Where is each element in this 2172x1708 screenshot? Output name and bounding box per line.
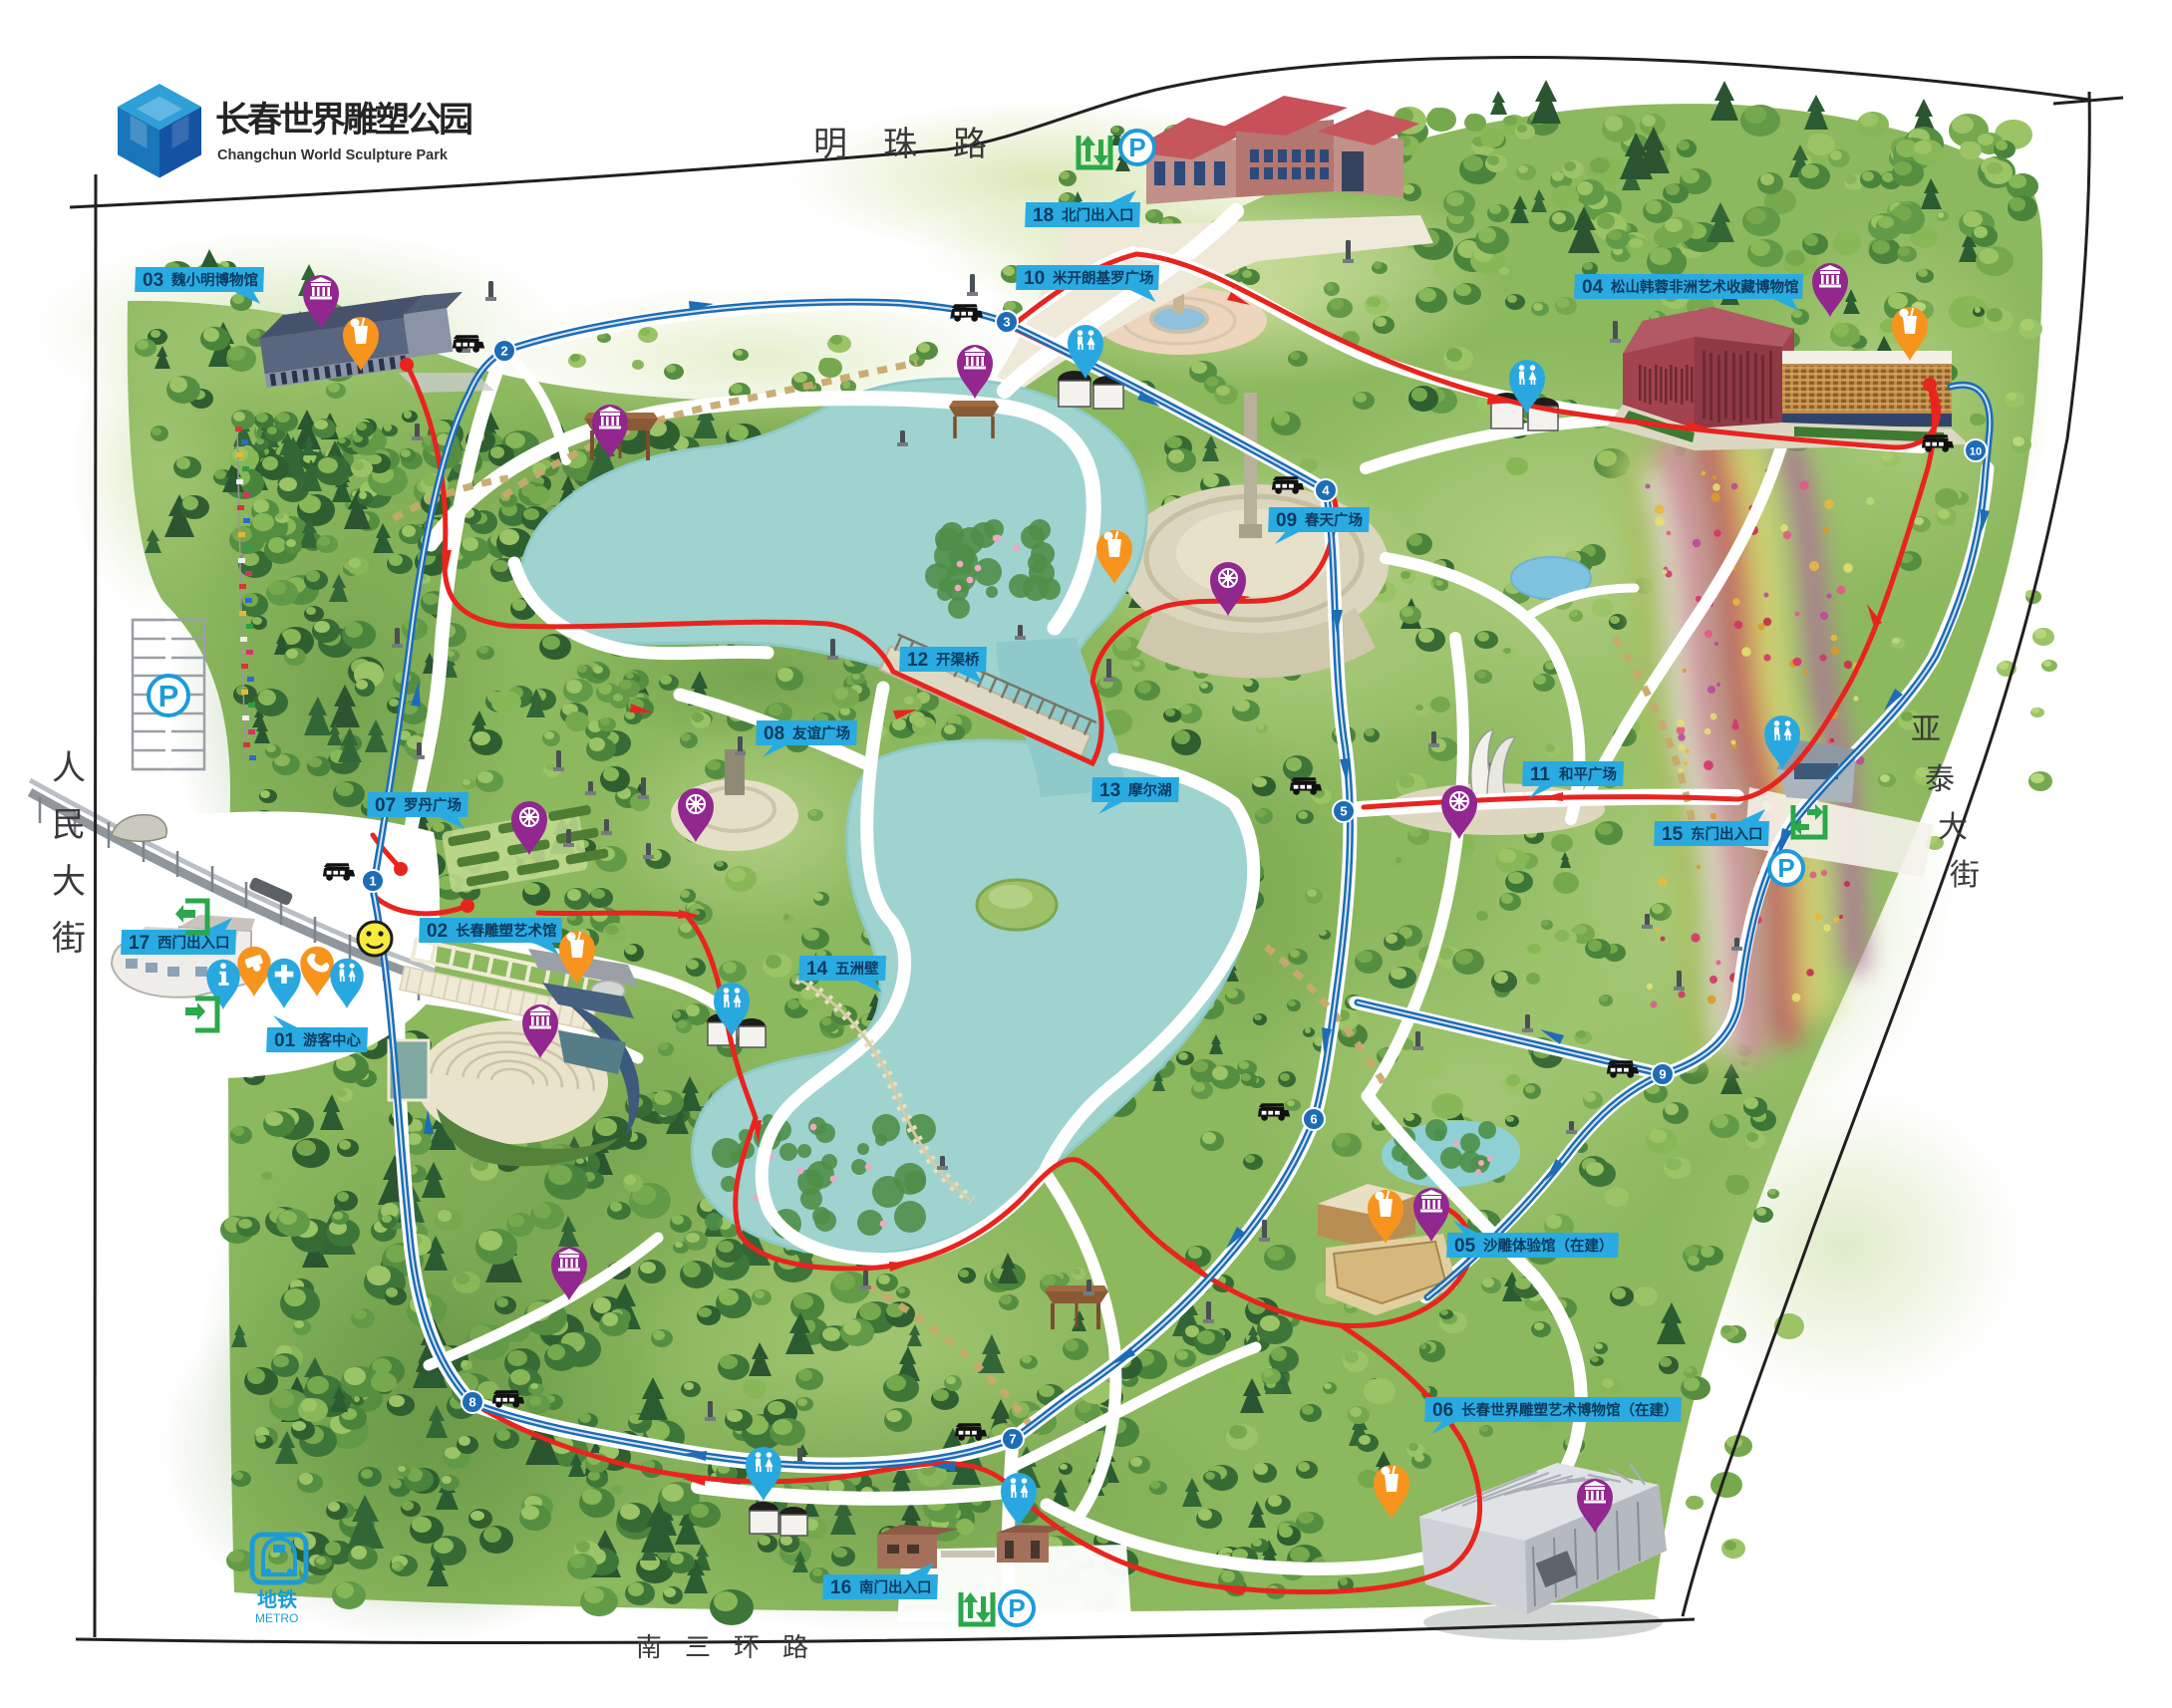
svg-text:01: 01 — [274, 1030, 296, 1051]
svg-text:西门出入口: 西门出入口 — [157, 934, 230, 952]
svg-text:P: P — [1777, 853, 1794, 883]
svg-text:友谊广场: 友谊广场 — [792, 724, 850, 742]
svg-text:亚: 亚 — [1911, 713, 1941, 746]
svg-text:人: 人 — [52, 749, 86, 787]
svg-text:长春雕塑艺术馆: 长春雕塑艺术馆 — [456, 922, 557, 940]
svg-text:02: 02 — [427, 921, 448, 942]
svg-text:09: 09 — [1276, 510, 1297, 531]
svg-text:魏小明博物馆: 魏小明博物馆 — [170, 271, 258, 289]
svg-text:METRO: METRO — [255, 1611, 298, 1625]
svg-text:P: P — [1128, 133, 1145, 162]
svg-text:9: 9 — [1659, 1067, 1666, 1082]
svg-text:05: 05 — [1454, 1236, 1476, 1257]
svg-text:1: 1 — [369, 874, 376, 889]
svg-text:06: 06 — [1432, 1400, 1453, 1421]
svg-text:北门出入口: 北门出入口 — [1062, 206, 1134, 224]
svg-text:4: 4 — [1322, 483, 1330, 498]
svg-text:大: 大 — [1938, 811, 1968, 844]
svg-text:12: 12 — [907, 650, 928, 671]
svg-text:5: 5 — [1340, 804, 1347, 819]
svg-text:10: 10 — [1024, 268, 1045, 289]
svg-text:18: 18 — [1033, 205, 1054, 226]
svg-text:沙雕体验馆（在建）: 沙雕体验馆（在建） — [1483, 1237, 1614, 1255]
svg-text:春天广场: 春天广场 — [1305, 511, 1363, 529]
svg-text:07: 07 — [375, 795, 396, 816]
svg-text:街: 街 — [1950, 859, 1980, 892]
svg-text:南三环路: 南三环路 — [636, 1632, 831, 1662]
svg-text:南门出入口: 南门出入口 — [859, 1578, 932, 1596]
svg-text:13: 13 — [1099, 780, 1120, 801]
svg-text:P: P — [1008, 1593, 1025, 1623]
svg-text:泰: 泰 — [1925, 763, 1955, 796]
svg-text:7: 7 — [1009, 1432, 1016, 1447]
svg-text:民: 民 — [52, 806, 86, 844]
svg-text:长春世界雕塑艺术博物馆（在建）: 长春世界雕塑艺术博物馆（在建） — [1461, 1401, 1679, 1419]
svg-text:开渠桥: 开渠桥 — [936, 651, 980, 669]
svg-text:15: 15 — [1662, 824, 1684, 845]
svg-text:8: 8 — [468, 1395, 475, 1410]
svg-text:14: 14 — [806, 959, 828, 980]
svg-text:大: 大 — [52, 863, 86, 901]
svg-text:游客中心: 游客中心 — [303, 1031, 361, 1049]
svg-text:地铁: 地铁 — [257, 1587, 297, 1611]
svg-text:2: 2 — [500, 344, 507, 359]
svg-text:和平广场: 和平广场 — [1559, 765, 1617, 783]
svg-text:东门出入口: 东门出入口 — [1691, 825, 1763, 843]
svg-text:街: 街 — [52, 920, 86, 958]
svg-text:04: 04 — [1582, 277, 1604, 298]
svg-text:罗丹广场: 罗丹广场 — [404, 796, 462, 814]
svg-text:08: 08 — [764, 723, 784, 744]
svg-text:摩尔湖: 摩尔湖 — [1128, 781, 1172, 799]
svg-text:03: 03 — [143, 270, 163, 291]
svg-text:五洲壁: 五洲壁 — [835, 960, 879, 978]
svg-text:长春世界雕塑公园: 长春世界雕塑公园 — [215, 101, 471, 140]
svg-text:松山韩蓉非洲艺术收藏博物馆: 松山韩蓉非洲艺术收藏博物馆 — [1611, 278, 1799, 296]
svg-text:6: 6 — [1310, 1112, 1317, 1127]
svg-text:米开朗基罗广场: 米开朗基罗广场 — [1053, 269, 1154, 287]
svg-text:明珠路: 明珠路 — [813, 126, 1023, 163]
svg-text:10: 10 — [1970, 446, 1982, 458]
svg-text:11: 11 — [1530, 764, 1551, 785]
svg-text:16: 16 — [830, 1577, 851, 1598]
svg-text:Changchun World Sculpture Park: Changchun World Sculpture Park — [217, 147, 449, 163]
svg-text:P: P — [158, 679, 179, 713]
svg-text:17: 17 — [129, 933, 150, 954]
svg-text:3: 3 — [1003, 315, 1010, 330]
